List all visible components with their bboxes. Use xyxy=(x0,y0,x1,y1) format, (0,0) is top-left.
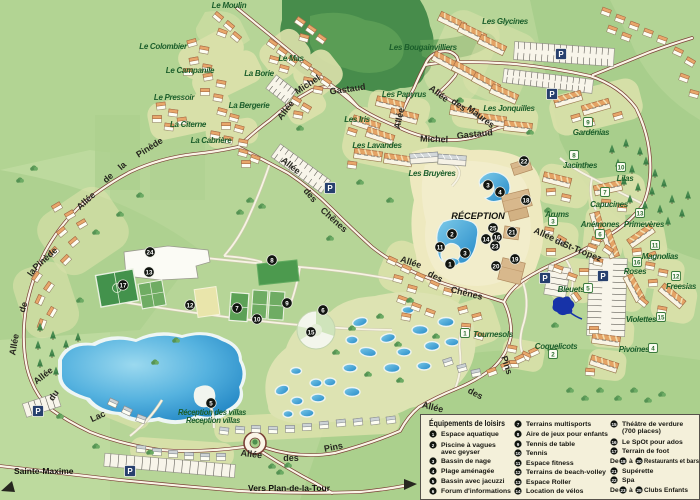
svg-text:21: 21 xyxy=(509,229,516,236)
svg-text:Espace aquatique: Espace aquatique xyxy=(441,431,499,438)
svg-text:RÉCEPTION: RÉCEPTION xyxy=(451,211,505,221)
svg-text:1: 1 xyxy=(432,432,435,437)
svg-text:Le Colombier: Le Colombier xyxy=(139,42,188,51)
svg-text:La Bergerie: La Bergerie xyxy=(229,101,271,110)
svg-text:Vers Plan-de-la-Tour: Vers Plan-de-la-Tour xyxy=(248,483,331,493)
svg-text:9: 9 xyxy=(586,119,590,126)
svg-text:2: 2 xyxy=(551,351,555,358)
svg-text:Restaurants et bars: Restaurants et bars xyxy=(644,458,699,465)
svg-text:15: 15 xyxy=(658,314,665,321)
svg-text:7: 7 xyxy=(517,422,520,427)
svg-text:avec geyser: avec geyser xyxy=(441,449,480,456)
svg-text:Les Jonquilles: Les Jonquilles xyxy=(483,104,535,113)
svg-text:Les Glycines: Les Glycines xyxy=(482,17,529,26)
svg-text:Les Bougainvilliers: Les Bougainvilliers xyxy=(389,43,458,52)
svg-text:Bassin de nage: Bassin de nage xyxy=(441,458,491,465)
svg-text:P: P xyxy=(558,50,564,59)
svg-text:Primevères: Primevères xyxy=(624,220,665,229)
svg-text:17: 17 xyxy=(120,282,127,289)
svg-text:Anémones: Anémones xyxy=(580,220,620,229)
svg-text:P: P xyxy=(127,467,133,476)
svg-text:18: 18 xyxy=(523,197,530,204)
svg-text:La Citerne: La Citerne xyxy=(170,120,207,129)
svg-text:Les Bruyères: Les Bruyères xyxy=(408,169,456,178)
svg-text:5: 5 xyxy=(209,400,213,407)
svg-text:Le Campanile: Le Campanile xyxy=(166,66,215,75)
svg-text:Tournesols: Tournesols xyxy=(473,330,514,339)
svg-text:P: P xyxy=(327,184,333,193)
svg-text:8: 8 xyxy=(270,257,274,264)
svg-text:25: 25 xyxy=(636,488,642,493)
svg-text:1: 1 xyxy=(463,330,467,337)
svg-text:Jacinthes: Jacinthes xyxy=(563,161,598,170)
svg-text:17: 17 xyxy=(611,449,617,454)
svg-text:6: 6 xyxy=(598,231,602,238)
svg-text:21: 21 xyxy=(611,469,617,474)
svg-text:Terrains de beach-volley: Terrains de beach-volley xyxy=(526,469,606,476)
svg-text:16: 16 xyxy=(634,259,641,266)
svg-text:(700 places): (700 places) xyxy=(622,428,661,435)
svg-text:8: 8 xyxy=(572,152,576,159)
svg-text:22: 22 xyxy=(611,478,617,483)
svg-text:8: 8 xyxy=(517,432,520,437)
svg-text:Violettes: Violettes xyxy=(626,315,657,324)
svg-text:Le Moulin: Le Moulin xyxy=(212,1,247,10)
svg-text:7: 7 xyxy=(603,189,607,196)
svg-text:Espace Roller: Espace Roller xyxy=(526,479,571,486)
svg-text:Forum d'informations: Forum d'informations xyxy=(441,488,511,495)
svg-text:à: à xyxy=(629,487,633,494)
svg-text:Aire de jeux pour enfants: Aire de jeux pour enfants xyxy=(526,431,608,438)
svg-text:Location de vélos: Location de vélos xyxy=(526,488,584,495)
svg-text:13: 13 xyxy=(515,480,521,485)
svg-text:11: 11 xyxy=(516,461,521,466)
svg-text:12: 12 xyxy=(187,302,194,309)
svg-text:P: P xyxy=(35,407,41,416)
svg-text:6: 6 xyxy=(321,307,325,314)
svg-text:Bleuets: Bleuets xyxy=(558,285,586,294)
svg-text:des: des xyxy=(283,453,299,463)
svg-text:Piscine à vagues: Piscine à vagues xyxy=(441,442,496,449)
svg-text:14: 14 xyxy=(483,236,490,243)
svg-text:18: 18 xyxy=(620,459,626,464)
svg-text:19: 19 xyxy=(512,256,519,263)
svg-text:4: 4 xyxy=(651,345,655,352)
svg-text:Supérette: Supérette xyxy=(622,468,654,475)
svg-text:Les Iris: Les Iris xyxy=(344,115,370,124)
svg-text:4: 4 xyxy=(432,469,435,474)
svg-text:9: 9 xyxy=(517,442,520,447)
svg-text:3: 3 xyxy=(486,182,490,189)
svg-text:Terrains multisports: Terrains multisports xyxy=(526,421,591,428)
svg-text:Le Mas: Le Mas xyxy=(278,54,304,63)
svg-text:15: 15 xyxy=(308,329,315,336)
svg-text:7: 7 xyxy=(235,305,239,312)
svg-text:2: 2 xyxy=(432,443,435,448)
svg-text:23: 23 xyxy=(492,243,499,250)
svg-text:Roses: Roses xyxy=(624,267,647,276)
svg-text:Bassin avec jacuzzi: Bassin avec jacuzzi xyxy=(441,478,505,485)
svg-text:P: P xyxy=(542,274,548,283)
svg-text:Clubs Enfants: Clubs Enfants xyxy=(644,487,688,494)
svg-text:Plage aménagée: Plage aménagée xyxy=(441,468,494,475)
svg-text:Michel: Michel xyxy=(420,134,448,145)
svg-text:25: 25 xyxy=(490,225,497,232)
svg-text:Théâtre de verdure: Théâtre de verdure xyxy=(622,421,683,428)
svg-text:12: 12 xyxy=(515,470,521,475)
svg-text:Le Pressoir: Le Pressoir xyxy=(154,93,195,102)
svg-text:La Borie: La Borie xyxy=(244,69,274,78)
svg-text:3: 3 xyxy=(463,250,467,257)
svg-text:22: 22 xyxy=(521,158,528,165)
svg-text:De: De xyxy=(610,487,619,494)
svg-text:Les Papyrus: Les Papyrus xyxy=(382,90,427,99)
svg-text:Magnolias: Magnolias xyxy=(642,252,679,261)
svg-text:13: 13 xyxy=(146,269,153,276)
svg-text:10: 10 xyxy=(618,164,625,171)
svg-text:4: 4 xyxy=(498,189,502,196)
svg-text:1: 1 xyxy=(448,261,452,268)
svg-text:16: 16 xyxy=(494,234,501,241)
svg-text:13: 13 xyxy=(637,210,644,217)
svg-text:2: 2 xyxy=(450,231,454,238)
svg-text:Les Lavandes: Les Lavandes xyxy=(352,141,402,150)
svg-text:24: 24 xyxy=(147,249,154,256)
svg-text:Équipements de loisirs: Équipements de loisirs xyxy=(429,419,506,428)
svg-text:Reception villas: Reception villas xyxy=(186,416,241,425)
svg-text:Tennis: Tennis xyxy=(526,450,548,457)
svg-text:20: 20 xyxy=(636,459,642,464)
svg-text:11: 11 xyxy=(437,244,444,251)
svg-text:3: 3 xyxy=(432,459,435,464)
svg-text:P: P xyxy=(600,272,606,281)
svg-text:6: 6 xyxy=(432,489,435,494)
svg-text:Lilas: Lilas xyxy=(617,174,635,183)
svg-text:La Cabrière: La Cabrière xyxy=(191,136,233,145)
svg-text:Sainte-Maxime: Sainte-Maxime xyxy=(14,466,74,476)
svg-text:P: P xyxy=(549,90,555,99)
svg-text:15: 15 xyxy=(611,422,617,427)
svg-text:23: 23 xyxy=(620,488,626,493)
svg-text:Espace fitness: Espace fitness xyxy=(526,460,574,467)
svg-text:10: 10 xyxy=(515,451,521,456)
svg-text:Terrain de foot: Terrain de foot xyxy=(622,448,670,455)
svg-text:Le SpOt pour ados: Le SpOt pour ados xyxy=(622,439,683,446)
svg-text:5: 5 xyxy=(586,285,590,292)
svg-text:5: 5 xyxy=(432,479,435,484)
svg-text:Tennis de table: Tennis de table xyxy=(526,441,575,448)
svg-text:Spa: Spa xyxy=(622,477,635,484)
svg-text:Gardénias: Gardénias xyxy=(573,128,610,137)
svg-text:De: De xyxy=(610,458,619,465)
svg-text:3: 3 xyxy=(551,218,555,225)
svg-text:11: 11 xyxy=(652,242,659,249)
svg-text:Freesias: Freesias xyxy=(666,282,697,291)
svg-text:14: 14 xyxy=(515,489,521,494)
svg-text:Capucines: Capucines xyxy=(590,200,629,209)
svg-text:Pivoines: Pivoines xyxy=(619,345,650,354)
svg-text:9: 9 xyxy=(285,300,289,307)
svg-text:16: 16 xyxy=(611,440,617,445)
svg-text:12: 12 xyxy=(673,273,680,280)
svg-text:à: à xyxy=(629,458,633,465)
svg-text:20: 20 xyxy=(493,263,500,270)
svg-text:10: 10 xyxy=(254,316,261,323)
